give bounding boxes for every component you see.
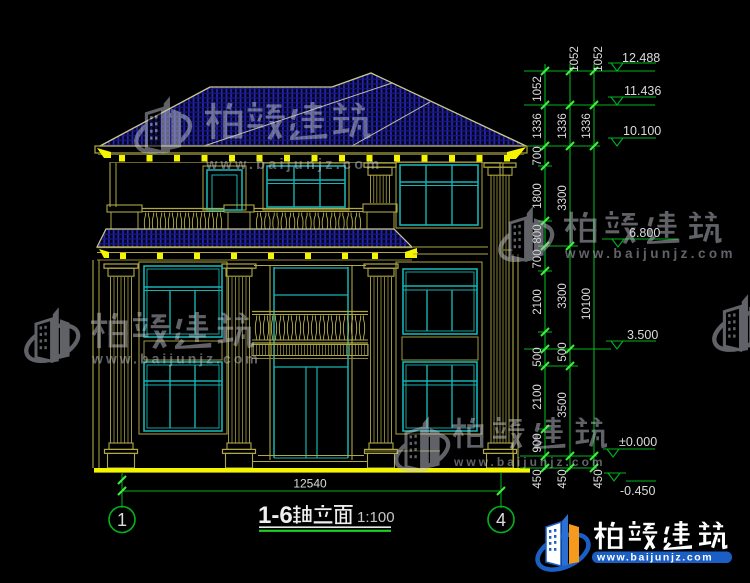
svg-text:1336: 1336 [557, 113, 569, 139]
svg-text:2100: 2100 [532, 384, 544, 410]
svg-text:3300: 3300 [557, 283, 569, 309]
svg-text:1336: 1336 [532, 113, 544, 139]
svg-text:1-6: 1-6 [258, 502, 293, 529]
svg-text:www.baijunjz.com: www.baijunjz.com [453, 455, 606, 469]
svg-text:1052: 1052 [593, 46, 605, 72]
svg-text:10100: 10100 [581, 288, 593, 320]
svg-text:4: 4 [496, 510, 506, 530]
svg-text:500: 500 [557, 342, 569, 361]
svg-text:11.436: 11.436 [624, 84, 661, 98]
svg-text:450: 450 [532, 469, 544, 488]
svg-text:12.488: 12.488 [622, 51, 660, 65]
svg-text:500: 500 [532, 347, 544, 366]
svg-text:www.baijunjz.com: www.baijunjz.com [91, 351, 261, 367]
svg-text:3.500: 3.500 [627, 328, 658, 342]
svg-text:2100: 2100 [532, 289, 544, 315]
svg-text:www.baijunjz.com: www.baijunjz.com [596, 552, 713, 564]
svg-text:1:100: 1:100 [357, 509, 395, 526]
svg-text:1052: 1052 [532, 76, 544, 102]
svg-text:450: 450 [557, 469, 569, 488]
svg-text:3300: 3300 [557, 185, 569, 211]
svg-text:www.baijunjz.com: www.baijunjz.com [205, 157, 382, 173]
svg-text:12540: 12540 [293, 477, 327, 491]
svg-text:3500: 3500 [557, 392, 569, 418]
svg-text:www.baijunjz.com: www.baijunjz.com [564, 246, 736, 261]
svg-text:1336: 1336 [581, 113, 593, 139]
svg-text:10.100: 10.100 [623, 124, 661, 138]
svg-text:700: 700 [532, 146, 544, 165]
svg-text:1800: 1800 [532, 183, 544, 209]
svg-text:1052: 1052 [569, 46, 581, 72]
svg-text:1: 1 [117, 510, 127, 530]
svg-text:-0.450: -0.450 [620, 484, 655, 498]
svg-text:450: 450 [593, 469, 605, 488]
svg-text:±0.000: ±0.000 [619, 435, 657, 449]
